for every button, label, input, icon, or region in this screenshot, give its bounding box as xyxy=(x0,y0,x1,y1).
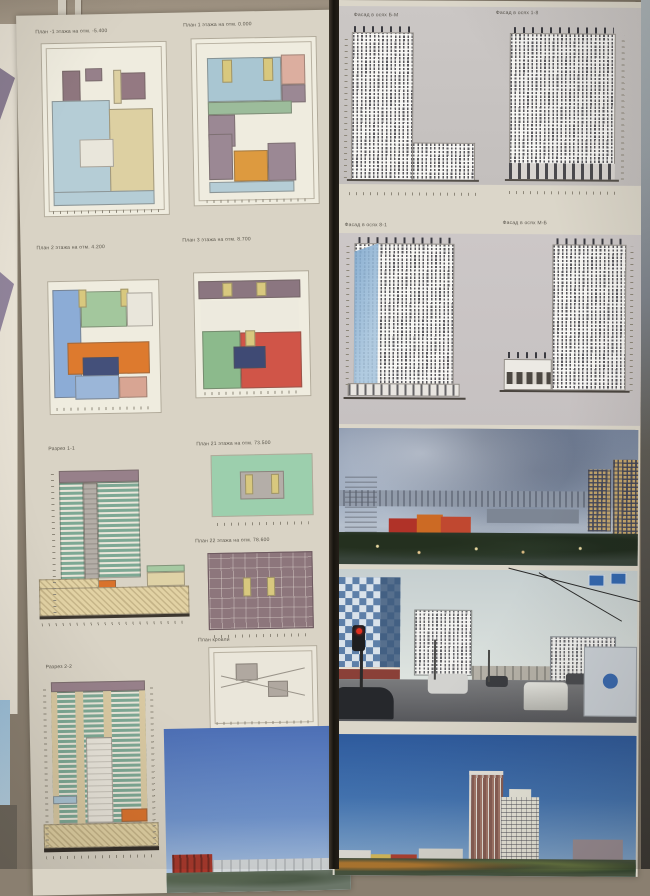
level-ticks xyxy=(630,247,634,391)
section-zone xyxy=(44,822,159,848)
facade-18-caption: Фасад в осях 1-8 xyxy=(496,10,539,16)
facade-81-podium xyxy=(348,383,460,397)
podium-openings xyxy=(507,372,551,384)
render-tower-white xyxy=(501,797,539,865)
facade-81-caption: Фасад в осях 8-1 xyxy=(345,222,388,228)
section-core xyxy=(86,737,114,823)
plan-zone xyxy=(208,134,233,180)
pilaster xyxy=(139,690,148,822)
truck-logo xyxy=(603,674,618,689)
photo-trees xyxy=(167,869,351,893)
board-gap-shadow xyxy=(329,0,339,869)
plan-frame xyxy=(213,650,313,724)
road-sign-blue xyxy=(588,575,604,587)
plan-2-caption: План 2 этажа на отм. 4.200 xyxy=(36,244,105,251)
dimension-ticks xyxy=(349,192,477,196)
plan-zone xyxy=(126,292,153,326)
right-board: Фасад в осях Б-М Фасад в осях 1-8 Фасад … xyxy=(333,0,643,877)
red-light xyxy=(356,628,362,634)
section-zone xyxy=(53,796,77,804)
plan-zone xyxy=(271,474,279,494)
level-ticks xyxy=(621,36,625,180)
plan-zone xyxy=(263,58,273,81)
dimension-ticks xyxy=(57,406,153,411)
plan-zone xyxy=(281,54,306,84)
car xyxy=(336,687,394,719)
facade-81-glass-corner xyxy=(354,243,379,385)
ground-line xyxy=(344,397,466,400)
sheet-triangle-graphic xyxy=(0,272,14,332)
dimension-ticks xyxy=(53,209,161,214)
scene: План -1 этажа на отм. -5.400 План 1 этаж… xyxy=(0,0,650,869)
facade-band-2 xyxy=(335,233,641,426)
plan-22-caption: План 22 этажа на отм. 78.600 xyxy=(195,537,269,544)
plan-1-caption: План 1 этажа на отм. 0.000 xyxy=(183,21,252,28)
section-1-drawing xyxy=(37,459,190,632)
plan-zone xyxy=(53,190,154,206)
level-ticks xyxy=(43,686,49,846)
plan-3-caption: План 3 этажа на отм. 8.700 xyxy=(182,236,251,243)
plan-zone xyxy=(256,282,266,296)
glass-dark-strip xyxy=(380,577,401,667)
plan-zone xyxy=(198,279,300,299)
plan-zone xyxy=(78,289,86,307)
street-glass-tower xyxy=(338,577,401,667)
dimension-ticks xyxy=(42,621,188,627)
facade-bm-podium xyxy=(413,142,475,180)
plan-minus1-caption: План -1 этажа на отм. -5.400 xyxy=(35,28,107,35)
dimension-ticks xyxy=(46,854,157,859)
facade-mb-tower xyxy=(552,244,627,390)
section-2-drawing xyxy=(41,676,160,862)
plan-zone xyxy=(268,142,297,181)
plan-zone xyxy=(234,150,269,182)
street-mid-slab xyxy=(414,609,472,675)
facade-bm-caption: Фасад в осях Б-М xyxy=(354,12,398,18)
street-low-buildings xyxy=(472,666,552,680)
plan-zone xyxy=(85,68,102,81)
plan-zone xyxy=(233,346,265,369)
lamp-pole xyxy=(434,640,436,680)
plan-minus1-drawing xyxy=(41,41,170,217)
lamp-pole xyxy=(488,650,490,682)
sheet-triangle-graphic xyxy=(0,68,15,120)
plan-zone xyxy=(113,70,122,104)
facade-18-podium xyxy=(509,163,615,180)
plan-1-drawing xyxy=(191,36,320,206)
plan-21-drawing xyxy=(211,453,314,517)
pano-right-tower xyxy=(613,460,638,536)
panorama-photo xyxy=(337,428,639,566)
dimension-ticks xyxy=(509,191,617,195)
level-ticks xyxy=(150,684,156,844)
plan-3-drawing xyxy=(193,270,311,398)
pano-street-lights xyxy=(357,538,617,560)
plan-21-caption: План 21 этажа на отм. 73.500 xyxy=(196,440,270,447)
plan-zone xyxy=(245,330,255,346)
sky-photo xyxy=(164,726,351,894)
plan-zone xyxy=(222,60,232,83)
pano-pavilion xyxy=(487,509,579,524)
plan-zone xyxy=(209,180,294,193)
facade-18-tower xyxy=(509,33,616,180)
truck xyxy=(584,647,637,717)
board-clip xyxy=(58,0,66,15)
plan-zone xyxy=(222,283,232,297)
facade-bm-tower xyxy=(351,32,414,180)
car-white xyxy=(524,682,568,710)
render-tower-glass xyxy=(469,771,504,865)
roof-plan-drawing xyxy=(208,645,319,729)
plan-zone xyxy=(119,376,147,398)
dimension-ticks xyxy=(207,198,307,203)
dimension-ticks xyxy=(204,390,300,395)
rooftop-marks xyxy=(508,352,552,358)
sheet-photo-sliver xyxy=(0,700,10,808)
plan-zone xyxy=(75,375,119,400)
street-photo xyxy=(336,569,638,723)
plan-zone xyxy=(245,474,253,494)
facade-band-1: Фасад в осях Б-М Фасад в осях 1-8 xyxy=(337,6,643,186)
ground-line xyxy=(500,390,630,393)
level-ticks xyxy=(346,245,350,385)
pano-right-tower xyxy=(588,470,611,532)
road-sign-blue xyxy=(610,573,626,585)
ground-line xyxy=(44,846,159,852)
plan-zone xyxy=(267,577,275,596)
render-trees xyxy=(335,858,636,877)
plan-22-drawing xyxy=(207,551,313,630)
plan-zone xyxy=(208,100,292,115)
section-zone xyxy=(59,483,85,586)
section-1-caption: Разрез 1-1 xyxy=(48,446,75,453)
level-ticks xyxy=(344,34,348,178)
wall-bottom-left xyxy=(0,805,17,869)
facade-mb-podium xyxy=(504,359,552,390)
facade-mb-caption: Фасад в осях М-Б xyxy=(503,220,547,226)
plan-zone xyxy=(120,72,146,99)
plan-zone xyxy=(109,108,155,192)
section-zone xyxy=(39,586,190,617)
board-clip xyxy=(75,0,81,15)
plan-2-drawing xyxy=(47,279,162,415)
plan-zone xyxy=(201,299,300,331)
left-board: План -1 этажа на отм. -5.400 План 1 этаж… xyxy=(16,10,351,896)
dimension-ticks xyxy=(217,720,311,725)
roof-plan-caption: План кровли xyxy=(198,637,230,644)
section-zone xyxy=(97,481,141,578)
ground-line xyxy=(505,179,619,182)
render-photo xyxy=(335,734,637,877)
right-edge-sliver xyxy=(641,0,650,869)
section-2-caption: Разрез 2-2 xyxy=(46,664,73,671)
plan-zone xyxy=(243,577,251,596)
traffic-light-head xyxy=(352,625,365,651)
section-zone xyxy=(121,808,147,821)
stacked-sheet xyxy=(0,24,18,714)
section-zone xyxy=(147,572,185,587)
street-sign-band xyxy=(338,667,400,679)
ground-line xyxy=(347,179,479,182)
plan-zone xyxy=(79,139,114,168)
dimension-ticks xyxy=(217,521,309,526)
